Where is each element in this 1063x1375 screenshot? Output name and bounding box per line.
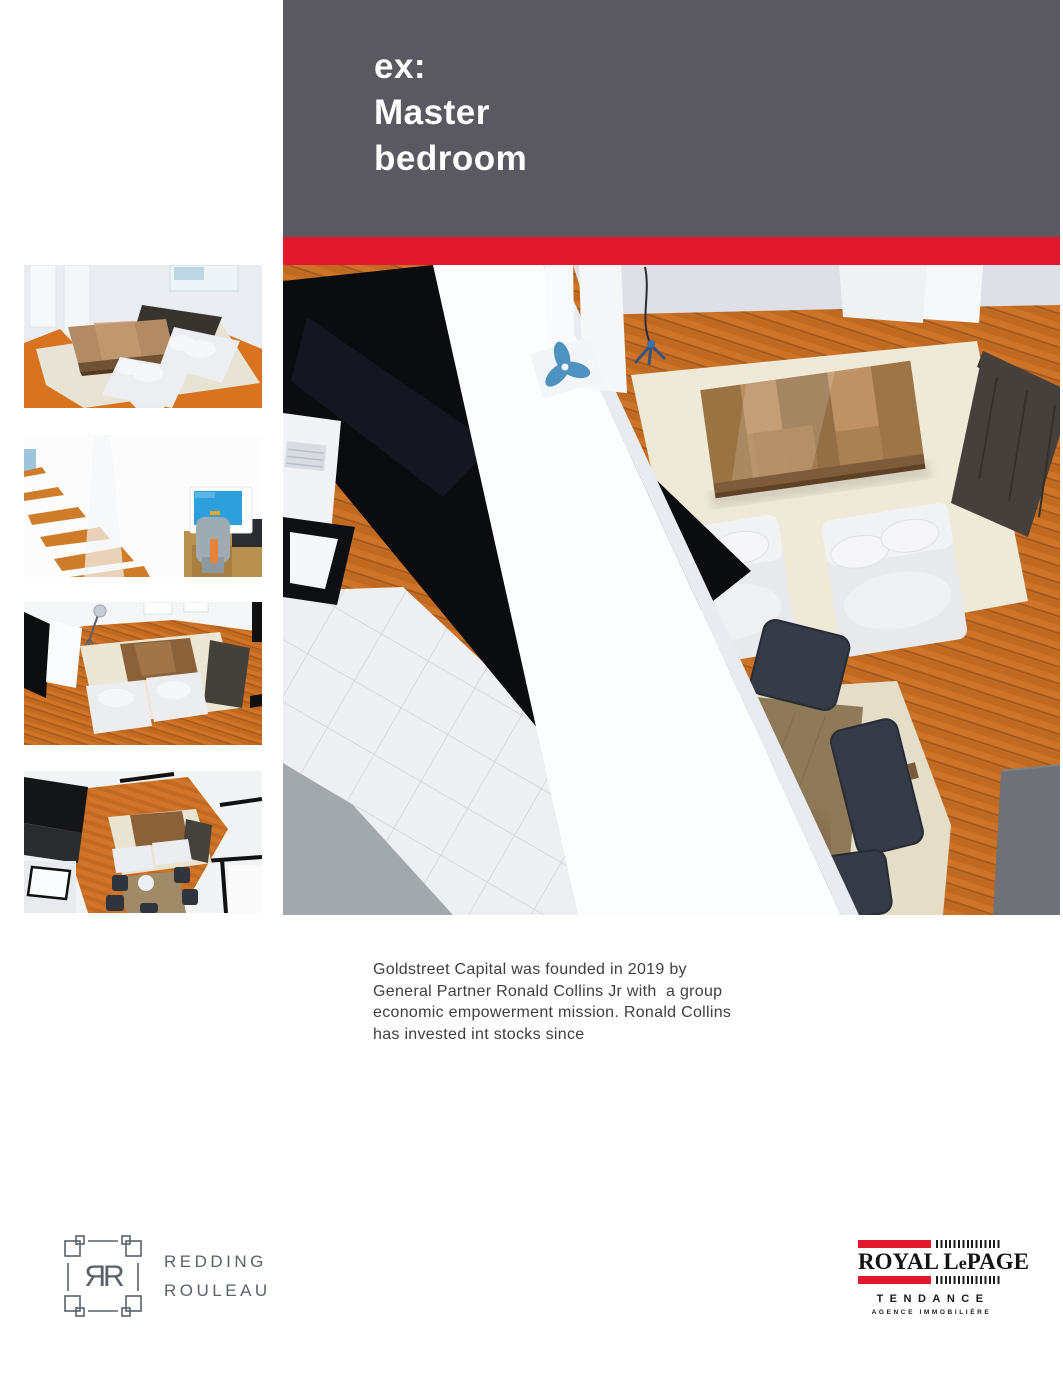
page-title-line-3: bedroom xyxy=(374,136,527,182)
royal-lepage-stripes xyxy=(936,1240,1002,1248)
page-title-line-2: Master xyxy=(374,90,527,136)
royal-lepage-stripes xyxy=(936,1276,1002,1284)
royal-lepage-tagline: AGENCE IMMOBILIÈRE xyxy=(858,1309,1002,1316)
body-paragraph-line-2: General Partner Ronald Collins Jr with a… xyxy=(373,981,731,1003)
redding-rouleau-name-line-1: REDDING xyxy=(164,1247,271,1276)
royal-lepage-bottom-bar xyxy=(858,1276,1002,1284)
page-title: ex: Master bedroom xyxy=(374,44,527,182)
thumbnail-staircase-desk xyxy=(24,435,262,577)
thumbnail-overhead-living-image xyxy=(24,602,262,745)
royal-lepage-red-bar xyxy=(858,1240,931,1248)
royal-lepage-red-bar xyxy=(858,1276,931,1284)
royal-lepage-top-bar xyxy=(858,1240,1002,1248)
redding-rouleau-name-line-2: ROULEAU xyxy=(164,1276,271,1305)
body-paragraph-line-3: economic empowerment mission. Ronald Col… xyxy=(373,1002,731,1024)
main-render xyxy=(283,265,1060,915)
page-title-line-1: ex: xyxy=(374,44,527,90)
main-render-image xyxy=(283,265,1060,915)
redding-rouleau-monogram: ЯR xyxy=(84,1260,124,1293)
redding-rouleau-emblem-icon: ЯR xyxy=(57,1233,149,1319)
body-paragraph-line-1: Goldstreet Capital was founded in 2019 b… xyxy=(373,959,731,981)
header-block: ex: Master bedroom xyxy=(283,0,1060,237)
redding-rouleau-logo: ЯR REDDING ROULEAU xyxy=(57,1233,271,1319)
royal-lepage-wordmark: ROYAL LePAGE xyxy=(858,1250,1002,1275)
royal-lepage-subtitle: TENDANCE xyxy=(858,1293,1002,1305)
redding-rouleau-name: REDDING ROULEAU xyxy=(164,1247,271,1305)
thumbnail-overhead-floorplan-image xyxy=(24,771,262,913)
thumbnail-overhead-floorplan xyxy=(24,771,262,913)
body-paragraph: Goldstreet Capital was founded in 2019 b… xyxy=(373,959,731,1045)
body-paragraph-line-4: has invested int stocks since xyxy=(373,1024,731,1046)
thumbnail-staircase-desk-image xyxy=(24,435,262,577)
thumbnail-living-room xyxy=(24,265,262,408)
thumbnail-living-room-image xyxy=(24,265,262,408)
thumbnail-overhead-living xyxy=(24,602,262,745)
red-accent-bar xyxy=(283,237,1060,265)
royal-lepage-logo: ROYAL LePAGE TENDANCE AGENCE IMMOBILIÈRE xyxy=(858,1240,1002,1316)
